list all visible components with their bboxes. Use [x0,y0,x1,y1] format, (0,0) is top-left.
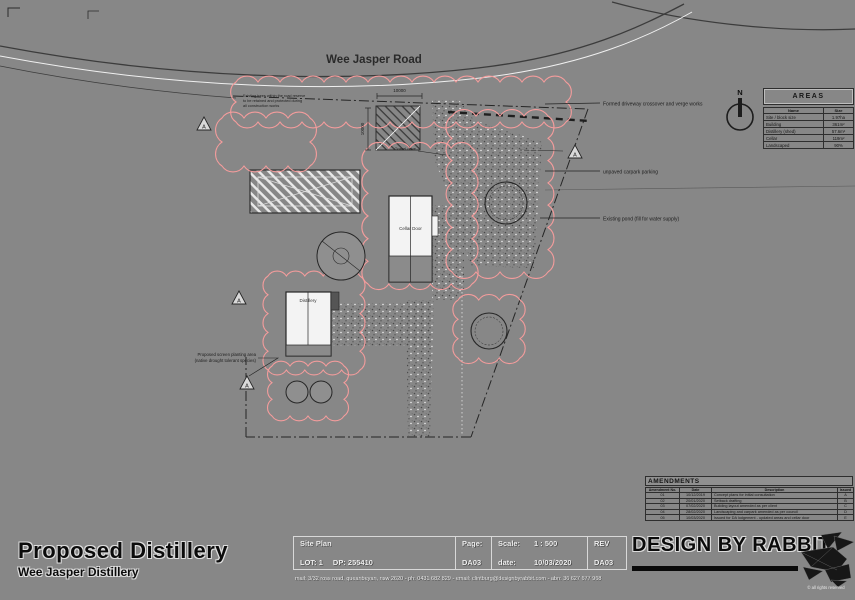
rabbit-ear-right [834,536,854,551]
rev-section: REV DA03 [588,537,626,569]
svg-text:to be retained and protected d: to be retained and protected during [243,99,302,103]
water-tank [317,232,365,280]
road-name-label: Wee Jasper Road [326,54,422,66]
areas-row: Building 361m² [764,121,854,128]
cellar-door-building: Cellar Door [389,196,438,282]
rabbit-jaw [803,567,823,580]
date-value: 10/03/2020 [534,558,572,567]
sheet-section: Site Plan LOT: 1 DP: 255410 [294,537,456,569]
road-reserve-note: Existing trees within the road reserve t… [243,94,305,108]
svg-text:Gravel drive: Gravel drive [394,146,416,151]
marker-a: A [202,125,206,131]
north-label: N [737,88,742,97]
project-subtitle: Wee Jasper Distillery [18,565,139,579]
distillery-label: Distillery [299,298,317,303]
amend-col-no: Amendment No. [646,488,680,493]
amendment-issue: E [838,515,854,521]
areas-title: AREAS [763,88,854,105]
callouts: Formed driveway crossover and verge work… [540,102,703,223]
rev-value: DA03 [594,558,613,567]
area-size: 1.97ha [824,114,854,121]
area-size: 361m² [824,121,854,128]
areas-row: Cellar 119m² [764,135,854,142]
project-title: Proposed Distillery [18,538,228,564]
rabbit-logo [797,532,855,588]
marker-a: A [573,153,577,159]
brand-underline [632,566,798,571]
marker-a: A [245,384,249,390]
svg-text:10000: 10000 [360,122,365,135]
areas-row: Landscaped 90% [764,142,854,149]
lot-label: LOT: 1 [300,558,323,567]
callout-crossover: Formed driveway crossover and verge work… [603,102,703,108]
amend-col-issued: Issued [838,488,854,493]
title-block: Proposed Distillery Wee Jasper Distiller… [0,532,855,600]
date-label: date: [498,558,524,567]
contact-line: mail: 3/32 ross road, queanbeyan, nsw 26… [295,576,795,582]
amendment-row: 05 10/03/2020 Issued for DA lodgement - … [646,515,854,521]
amendment-no: 05 [646,515,680,521]
road-lines [0,2,855,190]
sheet-corner-mark [88,11,99,19]
amendments-title: AMENDMENTS [645,476,853,486]
svg-text:Proposed screen planting area: Proposed screen planting area [197,352,256,357]
distillery-building: Distillery [286,292,339,356]
callout-parking: unpaved carpark parking [603,170,658,176]
amendment-description: Issued for DA lodgement - updated areas … [712,515,838,521]
dp-label: DP: 255410 [333,558,373,567]
svg-text:(native drought tolerant speci: (native drought tolerant species) [195,358,257,363]
svg-text:10000: 10000 [393,88,406,93]
revision-cloud [216,112,317,172]
sheet-corner-mark [8,8,20,17]
page-value: DA03 [462,558,481,567]
areas-row: Site / block size 1.97ha [764,114,854,121]
rev-label: REV [594,539,609,548]
revision-cloud [453,294,525,363]
north-arrow: N [727,88,753,130]
amendment-date: 10/03/2020 [680,515,712,521]
marker-a: A [237,299,241,305]
scale-date-section: Scale: 1 : 500 date: 10/03/2020 [492,537,588,569]
areas-table: AREAS Name Size Site / block size 1.97ha… [763,88,854,149]
dimension-depth: 10000 [360,108,371,150]
scale-label: Scale: [498,539,524,548]
screen-planting-note: Proposed screen planting area (native dr… [195,352,278,376]
svg-text:Existing trees within the road: Existing trees within the road reserve [243,94,305,98]
area-name: Landscaped [764,142,824,149]
areas-row: Distillery (shed) 57.6m² [764,128,854,135]
small-tanks [286,381,332,403]
callout-pond: Existing pond (fill for water supply) [603,217,679,223]
cellar-door-label: Cellar Door [399,226,422,231]
sheet-name: Site Plan [300,539,332,548]
gravel-driveway-area [332,100,542,437]
area-size: 119m² [824,135,854,142]
area-size: 90% [824,142,854,149]
dimension-width: 10000 [377,88,422,99]
area-size: 57.6m² [824,128,854,135]
area-name: Building [764,121,824,128]
svg-text:all construction works: all construction works [243,104,279,108]
page-label: Page: [462,539,482,548]
hatched-hardstand-area [250,170,360,213]
title-block-cells: Site Plan LOT: 1 DP: 255410 Page: DA03 S… [293,536,627,570]
scale-value: 1 : 500 [534,539,557,548]
copyright-note: © all rights reserved [797,585,855,590]
page-section: Page: DA03 [456,537,492,569]
area-name: Cellar [764,135,824,142]
area-name: Site / block size [764,114,824,121]
amendments-table: AMENDMENTS Amendment No. Date Descriptio… [645,476,853,521]
area-name: Distillery (shed) [764,128,824,135]
